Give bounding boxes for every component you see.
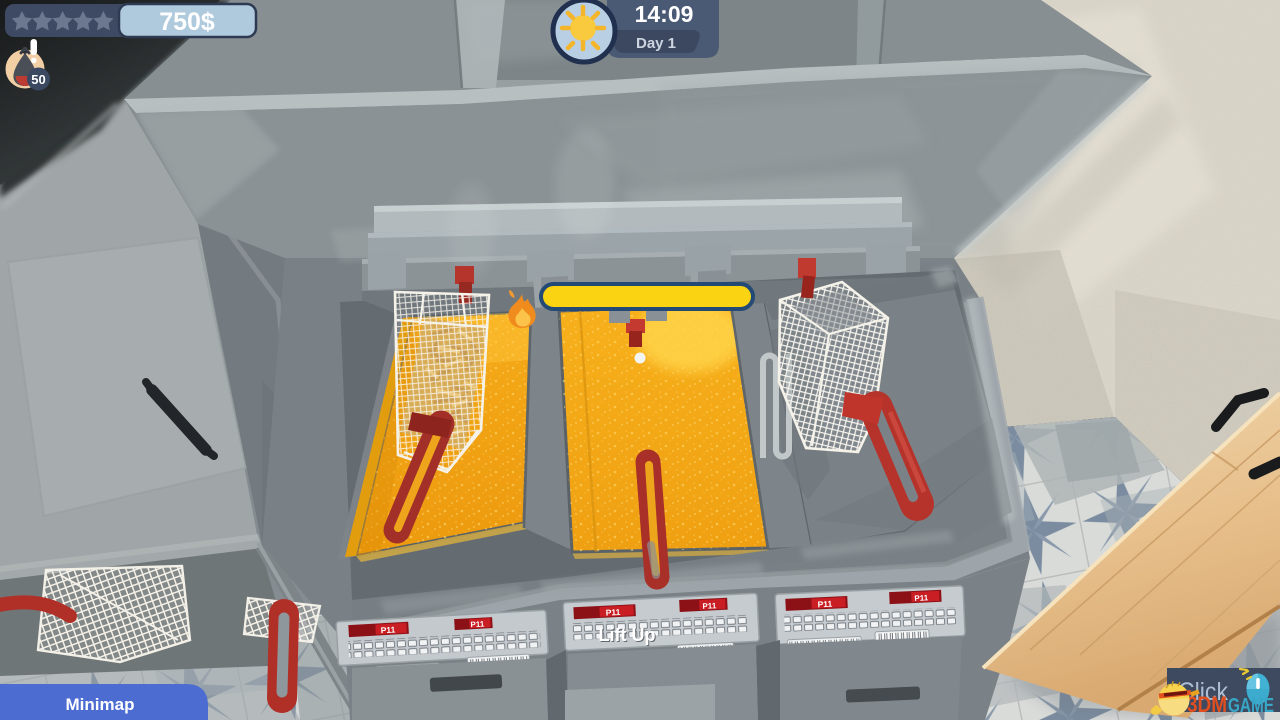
svg-text:P11: P11 xyxy=(914,593,929,603)
svg-text:P11: P11 xyxy=(380,624,395,635)
svg-text:Lift Up: Lift Up xyxy=(599,625,656,645)
svg-text:P11: P11 xyxy=(470,619,485,629)
svg-text:Day 1: Day 1 xyxy=(636,35,676,52)
svg-text:P11: P11 xyxy=(817,599,832,610)
svg-text:750$: 750$ xyxy=(159,8,215,36)
svg-text:50: 50 xyxy=(31,72,45,87)
svg-text:14:09: 14:09 xyxy=(635,1,694,27)
svg-text:P11: P11 xyxy=(702,601,717,611)
svg-text:P11: P11 xyxy=(605,607,620,618)
svg-text:Minimap: Minimap xyxy=(66,695,135,714)
svg-text:GAME: GAME xyxy=(1228,695,1274,717)
